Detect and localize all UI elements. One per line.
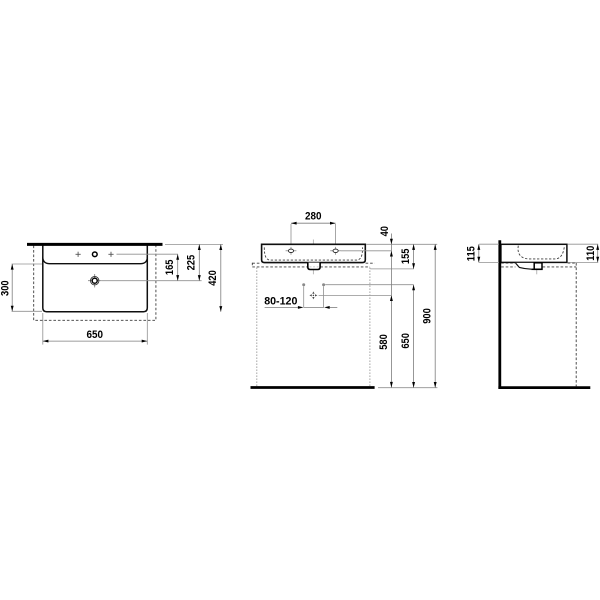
svg-text:650: 650: [400, 333, 412, 349]
svg-text:420: 420: [207, 270, 219, 286]
svg-text:900: 900: [422, 308, 434, 324]
svg-text:155: 155: [400, 248, 412, 264]
svg-text:40: 40: [379, 226, 391, 237]
svg-text:165: 165: [164, 259, 176, 275]
svg-text:580: 580: [378, 334, 390, 350]
svg-text:80-120: 80-120: [264, 295, 297, 307]
svg-text:110: 110: [585, 245, 597, 260]
svg-text:225: 225: [186, 255, 198, 271]
svg-text:650: 650: [87, 329, 104, 341]
svg-text:115: 115: [466, 246, 478, 261]
svg-text:300: 300: [0, 280, 12, 296]
svg-text:280: 280: [305, 211, 322, 223]
